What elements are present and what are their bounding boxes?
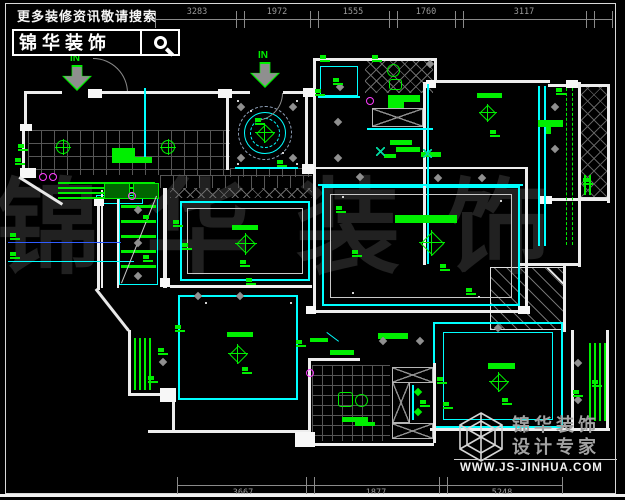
dimension-tick [177,477,178,494]
annotation-bar [112,157,152,163]
wall-column-block [160,388,176,402]
dimension-tick [463,11,464,28]
annotation-bar [227,332,253,337]
ceiling-dot [296,163,298,165]
ceiling-dot [250,110,252,112]
annotation-mark [352,250,363,258]
annotation-mark [143,255,154,263]
dimension-label: 1760 [404,7,448,17]
entry-marker-label: IN [258,50,268,61]
wall-segment [310,443,434,446]
wall-segment [548,198,608,201]
spotlight-symbol [551,103,559,111]
dimension-tick [244,11,245,28]
ceiling-dot [237,100,239,102]
dimension-tick [318,11,319,28]
wall-segment [313,188,316,313]
wardrobe-hatch-line [566,88,567,245]
wall-segment [563,265,566,332]
annotation-mark [242,367,253,375]
ceiling-lamp-symbol [235,233,257,255]
annotation-bar [395,215,457,223]
annotation-bar [390,140,412,145]
dimension-label: 3283 [175,7,219,17]
wall-segment [305,93,308,170]
dimension-line [155,19,612,20]
spotlight-symbol [289,103,297,111]
crosshatch-strip [170,188,312,198]
balcony-line [139,338,141,390]
wall-segment [128,330,131,395]
dimension-tick [612,11,613,28]
annotation-mark [556,88,567,96]
wall-column-block [306,306,316,314]
balcony-line [604,343,606,421]
entry-arrow-fill [64,67,90,89]
dimension-label: 1972 [255,7,299,17]
spotlight-symbol [334,154,342,162]
dimension-tick [306,477,307,494]
annotation-bar [355,422,375,426]
dimension-tick [236,11,237,28]
annotation-bar [388,95,420,102]
annotation-mark [583,178,594,186]
wall-segment [308,358,360,361]
annotation-bar [330,350,354,355]
cyan-line [544,86,546,246]
annotation-mark [246,278,257,286]
annotation-mark [175,325,186,333]
annotation-mark [502,398,513,406]
annotation-mark [592,380,603,388]
dimension-label: 1555 [331,7,375,17]
ceiling-grid [230,168,312,177]
annotation-mark [573,390,584,398]
annotation-bar [546,127,551,134]
dimension-tick [586,11,587,28]
logo-divider-line [454,459,617,460]
dimension-tick [455,11,456,28]
wall-column-block [20,124,32,131]
spotlight-symbol [551,145,559,153]
cyan-line [8,261,134,262]
annotation-bar [538,120,563,127]
dimension-label: 3117 [502,7,546,17]
dimension-tick [389,11,390,28]
cyan-line [538,86,540,246]
annotation-mark [372,55,383,63]
spotlight-symbol [159,358,167,366]
annotation-bar [477,93,502,98]
wall-column-block [20,168,36,178]
annotation-mark [420,400,431,408]
ceiling-dot [478,296,480,298]
spotlight-symbol [237,154,245,162]
round-lamp-symbol [161,140,175,154]
ceiling-lamp-symbol [228,344,248,364]
annotation-mark [320,55,331,63]
furniture-symbol [104,183,130,199]
annotation-bar [232,225,258,230]
ceiling-lamp-symbol [489,372,509,392]
dimension-line [177,485,562,486]
annotation-mark [466,288,477,296]
spotlight-symbol [334,118,342,126]
search-tagline: 更多装修资讯敬请搜索 [17,6,180,25]
dimension-tick [594,11,595,28]
annotation-bar [396,147,420,152]
wall-column-block [94,198,104,206]
ceiling-lamp-symbol [419,230,445,256]
wall-segment [433,363,436,443]
annotation-bar [388,102,404,108]
annotation-mark [15,158,26,166]
wall-column-block [302,164,314,174]
fixture-symbol-magenta [49,173,57,181]
entry-marker: IN [62,53,92,93]
balcony-line [134,338,136,390]
fixture-symbol-magenta [366,97,374,105]
ceiling-dot [500,200,502,202]
wall-column-block [566,80,578,88]
wall-segment [525,167,528,313]
diagonal-line [95,288,130,332]
wall-segment [148,430,310,433]
fixture-square-symbol [389,79,402,90]
cyan-line [235,167,298,169]
annotation-mark [296,340,307,348]
dimension-tick [314,477,315,494]
wall-column-block [540,196,552,204]
logo-website-text: WWW.JS-JINHUA.COM [460,462,603,474]
ceiling-dot [342,196,344,198]
wall-column-block [218,89,232,98]
led-spot-symbol [414,388,422,396]
door-swing-arc [93,58,128,93]
entry-arrow-fill [252,64,278,86]
cyan-line [318,184,523,186]
wall-segment [316,167,526,169]
ceiling-dot [290,302,292,304]
wall-segment [434,80,550,83]
crossed-fixture-box [392,382,410,423]
fixture-circle-symbol [355,394,368,407]
annotation-mark [18,144,29,152]
annotation-mark [10,252,21,260]
wall-segment [97,203,100,290]
wall-segment [578,82,581,267]
wall-segment [607,195,610,203]
annotation-mark [182,243,193,251]
fixture-symbol-magenta [39,173,47,181]
annotation-bar [310,338,328,342]
dimension-tick [397,11,398,28]
balcony-line [144,338,146,390]
balcony-line [589,343,591,421]
crossed-fixture-box [392,367,433,383]
wall-column-block [303,88,315,97]
annotation-mark [240,260,251,268]
annotation-mark [173,220,184,228]
entry-marker: IN [250,50,280,90]
dimension-tick [447,477,448,494]
annotation-mark [336,206,347,214]
annotation-mark [443,402,454,410]
fixture-symbol-magenta [128,192,136,200]
dimension-tick [439,477,440,494]
wall-segment [606,330,609,430]
wall-segment [117,190,119,288]
search-watermark-box: 更多装修资讯敬请搜索 锦华装饰 [12,6,180,56]
annotation-mark [440,264,451,272]
annotation-mark [437,377,448,385]
annotation-mark [158,348,169,356]
spotlight-symbol [416,337,424,345]
cad-floor-plan-canvas: 锦华装饰 32831972155517603117366718775248INI… [0,0,625,500]
annotation-mark [148,376,159,384]
annotation-bar [112,148,135,157]
dimension-tick [310,11,311,28]
ceiling-dot [282,152,284,154]
wall-segment [163,188,167,288]
wall-segment [313,310,528,313]
logo-slogan-text: 设计专家 [512,433,600,459]
dimension-tick [562,477,563,494]
fixture-circle-symbol [387,64,400,77]
x-marker [376,147,385,156]
wall-segment [170,285,312,288]
spotlight-symbol [574,359,582,367]
sheet-bottom-border [0,494,625,497]
annotation-mark [143,215,154,223]
wall-segment [607,84,610,201]
crossed-fixture-box [392,423,433,439]
wall-segment [26,91,62,94]
round-lamp-symbol [56,140,70,154]
leader-line-blue [8,242,121,243]
annotation-mark [255,118,266,126]
crossed-fixture-box [372,108,423,127]
ceiling-dot [296,100,298,102]
diagonal-line [326,332,339,342]
annotation-mark [277,160,288,168]
stair-step-line [121,250,156,253]
annotation-bar [384,154,396,158]
brand-name: 锦华装饰 [14,31,140,54]
ceiling-dot [205,302,207,304]
ceiling-lamp-symbol [255,123,275,143]
annotation-mark [490,130,501,138]
fixture-symbol-magenta [306,369,314,377]
wardrobe-hatch-line [572,88,573,245]
ceiling-lamp-symbol [479,104,497,122]
fixture-square-symbol [338,392,353,407]
wall-segment [520,263,580,266]
spotlight-symbol [289,154,297,162]
wall-column-block [295,432,315,447]
cube-logo-icon [454,409,508,465]
annotation-mark [333,78,344,86]
wall-segment [226,93,229,170]
ceiling-dot [352,292,354,294]
annotation-mark [10,233,21,241]
annotation-bar [488,363,515,369]
search-input-box: 锦华装饰 [12,29,180,56]
led-spot-symbol [414,408,422,416]
cyan-line [367,128,433,130]
search-button [142,31,178,54]
ceiling-dot [237,163,239,165]
spotlight-symbol [237,103,245,111]
annotation-mark [315,89,326,97]
cyan-line [144,88,146,160]
wall-column-block [518,306,530,314]
magnifier-icon [154,36,167,49]
wall-column-block [160,278,170,287]
x-marker [423,149,432,158]
